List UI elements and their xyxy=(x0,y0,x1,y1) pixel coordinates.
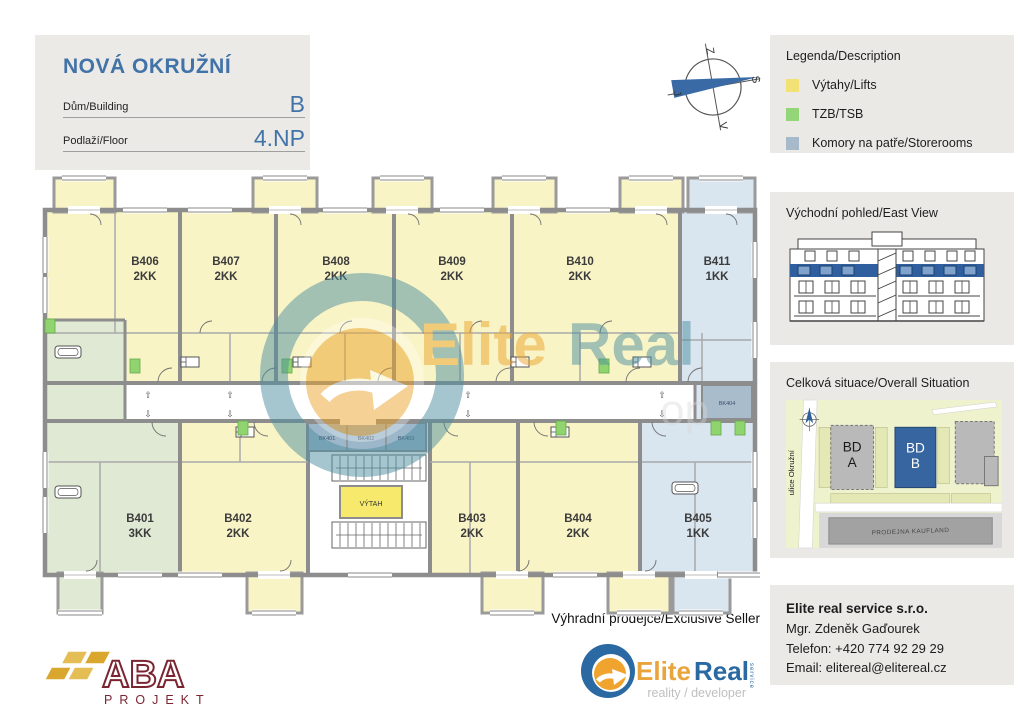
building-a-label-2: A xyxy=(848,455,858,470)
aba-name: ABA xyxy=(102,654,184,696)
building-a: BD A xyxy=(831,425,874,489)
legend-title: Legenda/Description xyxy=(786,49,1000,63)
lift: VÝTAH xyxy=(340,486,402,518)
building-b-label-2: B xyxy=(911,456,920,471)
building-label: Dům/Building xyxy=(63,101,128,116)
unit-id: B410 xyxy=(566,256,594,268)
legend-label: Výtahy/Lifts xyxy=(812,78,877,92)
unit-type: 3KK xyxy=(128,528,152,540)
watermark-text-elite: Elite xyxy=(420,311,547,378)
storeroom-label: BK404 xyxy=(719,401,736,407)
logo-text-elite: Elite xyxy=(636,656,691,686)
unit-id: B403 xyxy=(458,513,486,525)
svg-text:⇧: ⇧ xyxy=(464,390,472,400)
unit-type: 1KK xyxy=(686,528,710,540)
unit-id: B411 xyxy=(704,256,731,268)
legend-label: TZB/TSB xyxy=(812,107,863,121)
logo-tagline: reality / developer xyxy=(647,686,746,700)
storeroom-bk404: BK404 xyxy=(702,385,752,419)
unit-id: B409 xyxy=(438,256,466,268)
legend-item-lifts: Výtahy/Lifts xyxy=(786,78,1000,92)
logo-text-service: service xyxy=(748,663,754,689)
unit-b405-area xyxy=(640,421,755,575)
page-title: NOVÁ OKRUŽNÍ xyxy=(63,55,296,79)
svg-text:⇩: ⇩ xyxy=(226,409,234,419)
floorplan-sheet: NOVÁ OKRUŽNÍ Dům/Building B Podlaží/Floo… xyxy=(0,0,1024,724)
tzb-color-swatch xyxy=(786,108,799,121)
unit-id: B406 xyxy=(131,256,159,268)
unit-type: 1KK xyxy=(705,271,729,283)
legend-panel: Legenda/Description Výtahy/Lifts TZB/TSB… xyxy=(770,35,1014,153)
svg-text:op: op xyxy=(660,386,709,435)
logo-text-real: Real xyxy=(694,656,749,686)
storeroom-color-swatch xyxy=(786,137,799,150)
compass-rose-icon: Z S V J xyxy=(660,30,766,144)
unit-id: B407 xyxy=(212,256,240,268)
lift-color-swatch xyxy=(786,79,799,92)
unit-id: B405 xyxy=(684,513,712,525)
unit-id: B404 xyxy=(564,513,592,525)
lift-label: VÝTAH xyxy=(360,499,383,508)
phone-number: Telefon: +420 774 92 29 29 xyxy=(786,639,1000,659)
legend-label: Komory na patře/Storerooms xyxy=(812,136,973,150)
street-label: ulice Okružní xyxy=(787,449,796,495)
building-row: Dům/Building B xyxy=(63,93,305,118)
compass-north-label: S xyxy=(749,75,762,84)
svg-text:⇩: ⇩ xyxy=(144,409,152,419)
svg-text:⇧: ⇧ xyxy=(144,390,152,400)
svg-text:⇩: ⇩ xyxy=(464,409,472,419)
compass-west-label: Z xyxy=(703,47,716,56)
svg-text:⇧: ⇧ xyxy=(226,390,234,400)
contact-panel: Elite real service s.r.o. Mgr. Zdeněk Ga… xyxy=(770,585,1014,685)
east-view-elevation xyxy=(786,229,990,331)
email-address: Email: elitereal@elitereal.cz xyxy=(786,658,1000,678)
floor-label: Podlaží/Floor xyxy=(63,135,128,150)
building-b-highlighted: BD B xyxy=(895,427,936,487)
watermark-text-real: Real xyxy=(568,311,695,378)
unit-type: 2KK xyxy=(226,528,250,540)
situation-map: PRODEJNA KAUFLAND BD A BD B ulice Okružn… xyxy=(786,398,1002,550)
unit-id: B402 xyxy=(224,513,252,525)
legend-item-tzb: TZB/TSB xyxy=(786,107,1000,121)
unit-type: 2KK xyxy=(440,271,464,283)
situation-panel: Celková situace/Overall Situation PRODEJ… xyxy=(770,362,1014,558)
floor-value: 4.NP xyxy=(254,127,305,150)
unit-type: 2KK xyxy=(133,271,157,283)
situation-title: Celková situace/Overall Situation xyxy=(786,376,1000,390)
agent-name: Mgr. Zdeněk Gaďourek xyxy=(786,619,1000,639)
building-b-label-1: BD xyxy=(906,441,925,456)
east-view-title: Východní pohled/East View xyxy=(786,206,1000,220)
building-a-label-1: BD xyxy=(843,440,862,455)
building-value: B xyxy=(290,93,305,116)
unit-type: 2KK xyxy=(568,271,592,283)
compass-east-label: V xyxy=(716,121,729,131)
company-name: Elite real service s.r.o. xyxy=(786,599,1000,619)
unit-id: B408 xyxy=(322,256,350,268)
legend-item-storerooms: Komory na patře/Storerooms xyxy=(786,136,1000,150)
aba-projekt-logo: ABA PROJEKT xyxy=(38,645,218,709)
unit-type: 2KK xyxy=(460,528,484,540)
aba-sub: PROJEKT xyxy=(104,693,211,707)
floorplan-drawing: BK401 BK402 BK403 BK404 VÝTAH xyxy=(40,170,760,620)
elitereal-logo: Elite Real service reality / developer xyxy=(578,633,764,709)
unit-type: 2KK xyxy=(214,271,238,283)
title-block: NOVÁ OKRUŽNÍ Dům/Building B Podlaží/Floo… xyxy=(35,35,310,170)
unit-type: 2KK xyxy=(566,528,590,540)
unit-id: B401 xyxy=(126,513,154,525)
east-view-panel: Východní pohled/East View xyxy=(770,192,1014,345)
floor-row: Podlaží/Floor 4.NP xyxy=(63,127,305,152)
